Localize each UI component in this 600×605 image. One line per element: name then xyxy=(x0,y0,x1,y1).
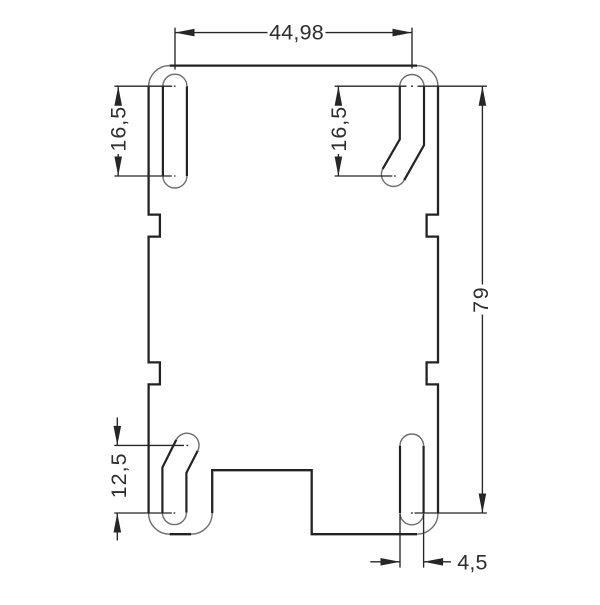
svg-text:4,5: 4,5 xyxy=(457,551,488,575)
svg-text:44,98: 44,98 xyxy=(269,21,324,45)
svg-text:12,5: 12,5 xyxy=(107,452,131,498)
svg-text:16,5: 16,5 xyxy=(327,106,351,152)
svg-text:16,5: 16,5 xyxy=(107,106,131,152)
svg-text:79: 79 xyxy=(469,286,493,313)
